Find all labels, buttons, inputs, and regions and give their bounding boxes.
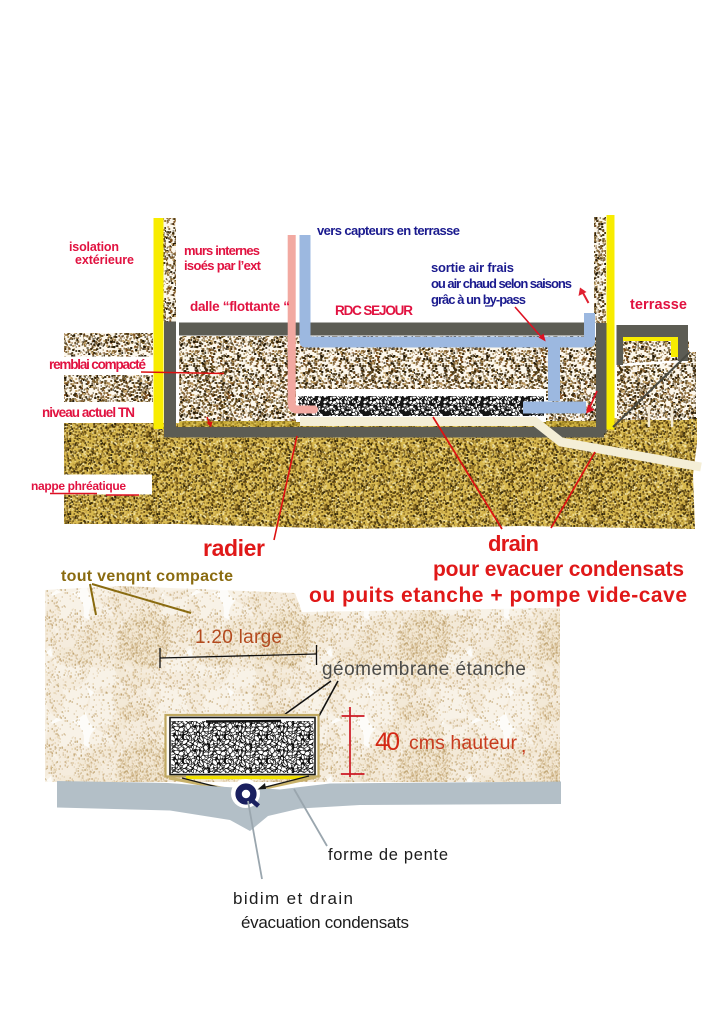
svg-text:40: 40 bbox=[375, 728, 400, 756]
svg-text:cms hauteur: cms hauteur bbox=[409, 732, 518, 754]
svg-text:1.20 large: 1.20 large bbox=[195, 627, 282, 648]
svg-text:isolation: isolation bbox=[69, 240, 119, 254]
svg-text:drain: drain bbox=[488, 531, 539, 556]
svg-text:murs internes: murs internes bbox=[184, 243, 260, 258]
svg-text:extérieure: extérieure bbox=[75, 253, 134, 267]
svg-text:ou puits etanche + pompe vide-: ou puits etanche + pompe vide-cave bbox=[309, 584, 687, 607]
svg-text:isoés par l’ext: isoés par l’ext bbox=[184, 258, 262, 273]
svg-text:évacuation condensats: évacuation condensats bbox=[241, 913, 409, 932]
svg-text:tout venqnt compacte: tout venqnt compacte bbox=[61, 568, 233, 585]
svg-text:forme de pente: forme de pente bbox=[328, 846, 448, 864]
svg-text:grâc à un by-pass: grâc à un by-pass bbox=[431, 292, 526, 307]
svg-text:géomembrane étanche: géomembrane étanche bbox=[322, 659, 526, 680]
svg-text:,: , bbox=[521, 735, 526, 757]
svg-text:bidim et drain: bidim et drain bbox=[233, 889, 353, 908]
svg-text:terrasse: terrasse bbox=[630, 297, 687, 313]
svg-text:vers capteurs en terrasse: vers capteurs en terrasse bbox=[317, 223, 460, 238]
svg-text:ou air chaud selon saisons: ou air chaud selon saisons bbox=[431, 276, 572, 291]
svg-text:radier: radier bbox=[203, 535, 265, 561]
svg-text:remblai compacté: remblai compacté bbox=[49, 357, 146, 372]
svg-text:nappe phréatique: nappe phréatique bbox=[31, 479, 126, 493]
svg-text:pour evacuer condensats: pour evacuer condensats bbox=[433, 558, 684, 581]
svg-text:sortie air frais: sortie air frais bbox=[431, 260, 514, 275]
svg-text:niveau actuel TN: niveau actuel TN bbox=[42, 405, 135, 420]
svg-text:RDC SEJOUR: RDC SEJOUR bbox=[335, 303, 413, 318]
svg-text:dalle “flottante “: dalle “flottante “ bbox=[190, 299, 290, 314]
